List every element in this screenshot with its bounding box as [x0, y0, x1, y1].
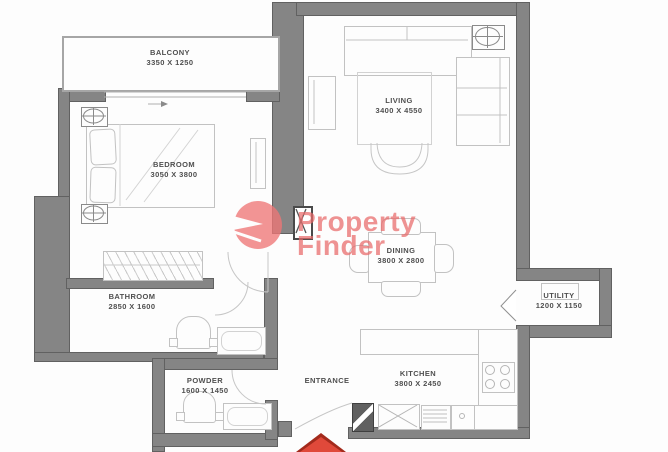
room-label-powder: POWDER 1600 X 1450 [145, 376, 265, 395]
room-label-balcony: BALCONY 3350 X 1250 [110, 48, 230, 67]
wall-utility-top [516, 268, 612, 281]
toilet [183, 391, 216, 423]
wall-bathroom-right [264, 278, 278, 370]
toilet [176, 316, 211, 349]
watermark-brand-line2: Finder [297, 232, 386, 260]
kitchen-counter [360, 329, 482, 355]
bathtub-inner [227, 407, 268, 426]
entrance-door-arc [295, 403, 352, 429]
bathtub-inner [221, 331, 262, 351]
wall-entrance-stub [278, 421, 292, 437]
wall-powder-top [152, 358, 278, 370]
sofa [344, 26, 472, 76]
fixture-knob [169, 338, 178, 347]
floor-plan: BALCONY 3350 X 1250 BEDROOM 3050 X 3800 … [0, 0, 668, 452]
room-label-bedroom: BEDROOM 3050 X 3800 [114, 160, 234, 179]
tv-unit-bedroom [250, 138, 266, 189]
room-label-kitchen: KITCHEN 3800 X 2450 [358, 369, 478, 388]
ceiling-fixture-icon [81, 204, 108, 224]
tv-unit-living [308, 76, 336, 130]
ceiling-fixture-icon [81, 107, 108, 127]
kitchen-counter-bottom [474, 405, 518, 430]
wall-powder-bottom [152, 433, 278, 447]
wall-living-top [296, 2, 530, 16]
dishwasher [421, 405, 451, 430]
dining-chair [381, 281, 421, 297]
washing-machine [378, 404, 420, 430]
fixture-knob [176, 412, 185, 421]
balcony-slider [104, 92, 246, 107]
room-label-living: LIVING 3400 X 4550 [339, 96, 459, 115]
wardrobe-closet [103, 251, 203, 281]
kitchen-sink [451, 405, 476, 430]
pillow [89, 128, 117, 165]
ceiling-fixture-icon [472, 25, 505, 50]
pillow [89, 167, 116, 204]
room-label-utility: UTILITY 1200 X 1150 [499, 291, 619, 310]
cabinet [456, 57, 510, 146]
bedroom-door-arc [228, 252, 268, 292]
wall-left-block [34, 196, 70, 362]
armchair [371, 143, 428, 174]
wall-kitchen-right [516, 325, 530, 439]
wall-living-right [516, 2, 530, 281]
wall-utility-bottom [528, 325, 612, 338]
bathroom-door-arc [215, 282, 248, 315]
entrance-door-leaf [352, 403, 374, 432]
stove [482, 362, 515, 393]
room-label-bathroom: BATHROOM 2850 X 1600 [72, 292, 192, 311]
